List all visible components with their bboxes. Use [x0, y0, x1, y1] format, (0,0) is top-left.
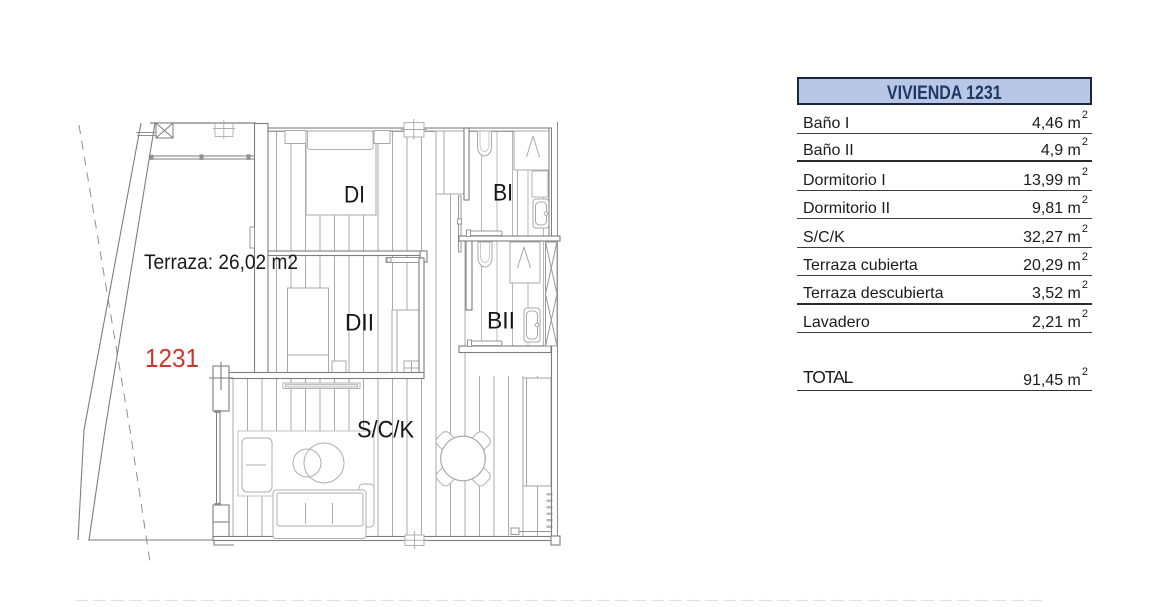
- svg-text:BI: BI: [493, 180, 513, 207]
- svg-text:BII: BII: [487, 308, 515, 335]
- svg-text:DI: DI: [344, 182, 365, 209]
- svg-text:DII: DII: [345, 310, 374, 337]
- svg-text:Terraza: 26,02 m2: Terraza: 26,02 m2: [144, 251, 298, 274]
- svg-text:1231: 1231: [145, 343, 199, 373]
- svg-text:S/C/K: S/C/K: [357, 417, 414, 444]
